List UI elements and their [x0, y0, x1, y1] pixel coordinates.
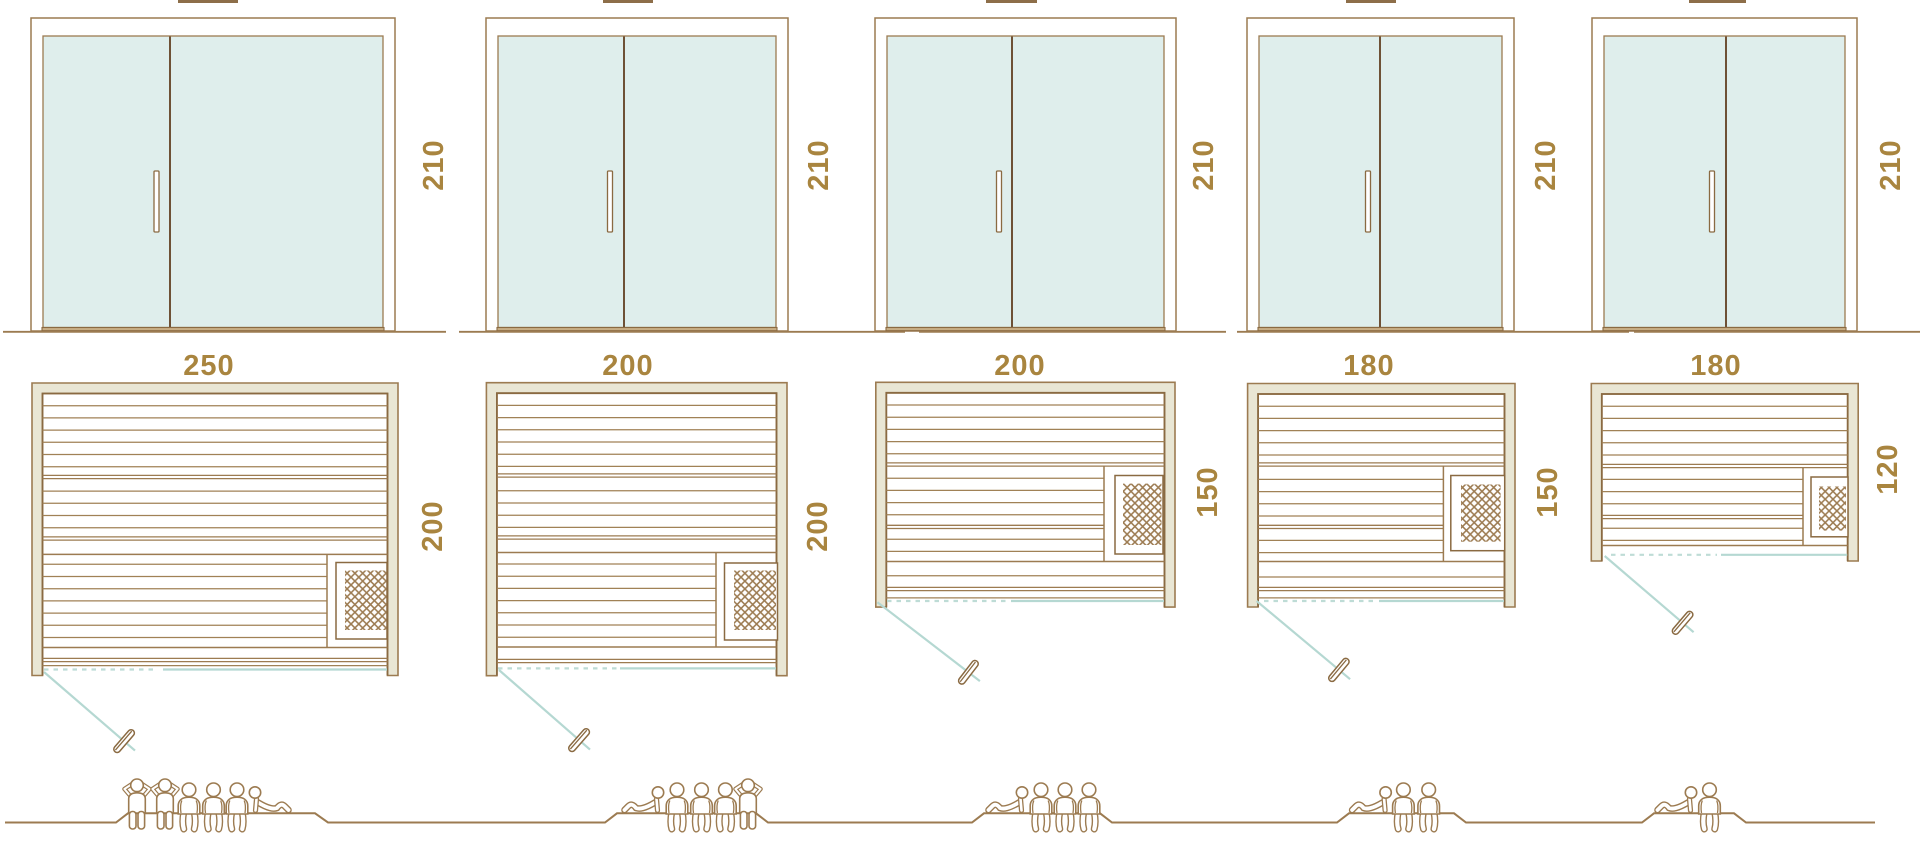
svg-text:210: 210 [803, 139, 835, 190]
svg-text:210: 210 [1875, 139, 1907, 190]
svg-text:180: 180 [1690, 350, 1741, 382]
svg-text:200: 200 [602, 350, 653, 382]
svg-text:200: 200 [802, 500, 834, 551]
svg-text:210: 210 [418, 139, 450, 190]
svg-text:200: 200 [994, 350, 1045, 382]
svg-text:200: 200 [417, 500, 449, 551]
svg-text:180: 180 [1343, 350, 1394, 382]
svg-text:210: 210 [1188, 139, 1220, 190]
svg-text:150: 150 [1192, 466, 1224, 517]
svg-text:120: 120 [1872, 443, 1904, 494]
svg-text:250: 250 [183, 350, 234, 382]
svg-text:210: 210 [1530, 139, 1562, 190]
svg-text:150: 150 [1532, 466, 1564, 517]
